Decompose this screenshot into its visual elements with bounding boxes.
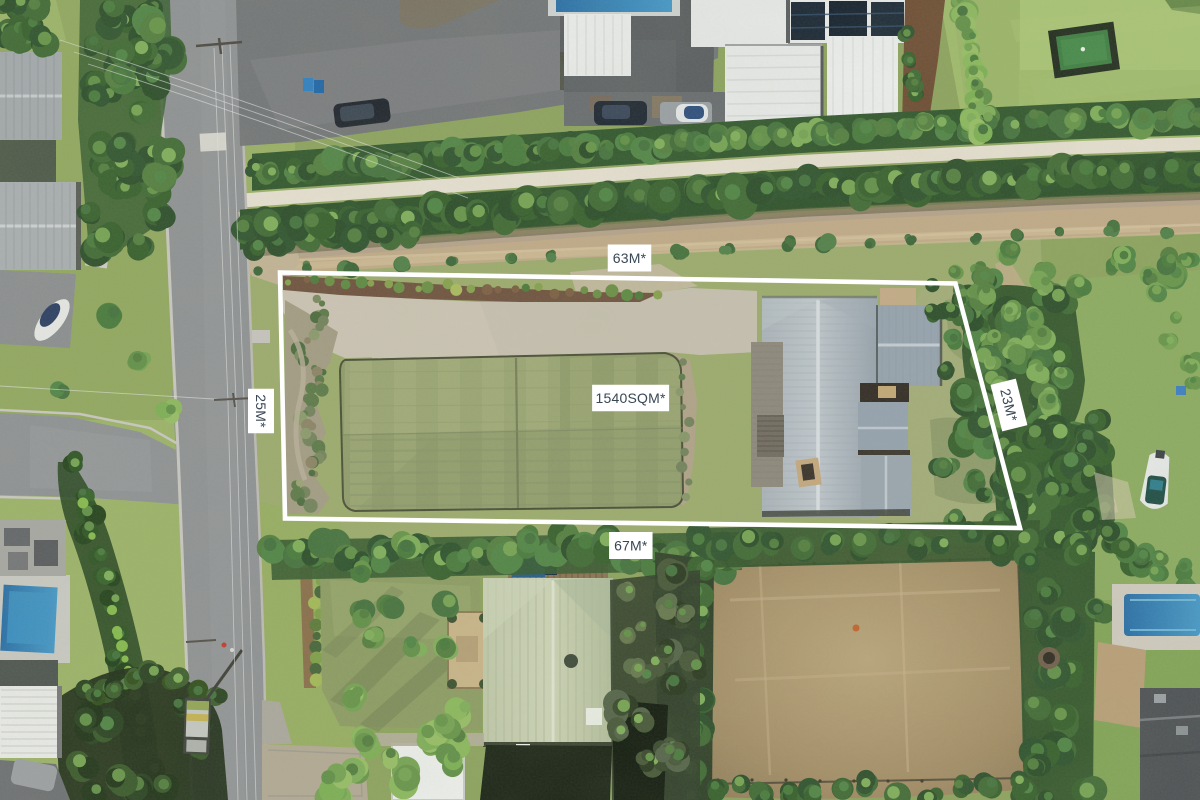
svg-text:1540SQM*: 1540SQM* bbox=[596, 390, 666, 406]
svg-text:25M*: 25M* bbox=[253, 394, 269, 428]
svg-text:67M*: 67M* bbox=[614, 538, 648, 554]
svg-text:63M*: 63M* bbox=[613, 250, 647, 266]
